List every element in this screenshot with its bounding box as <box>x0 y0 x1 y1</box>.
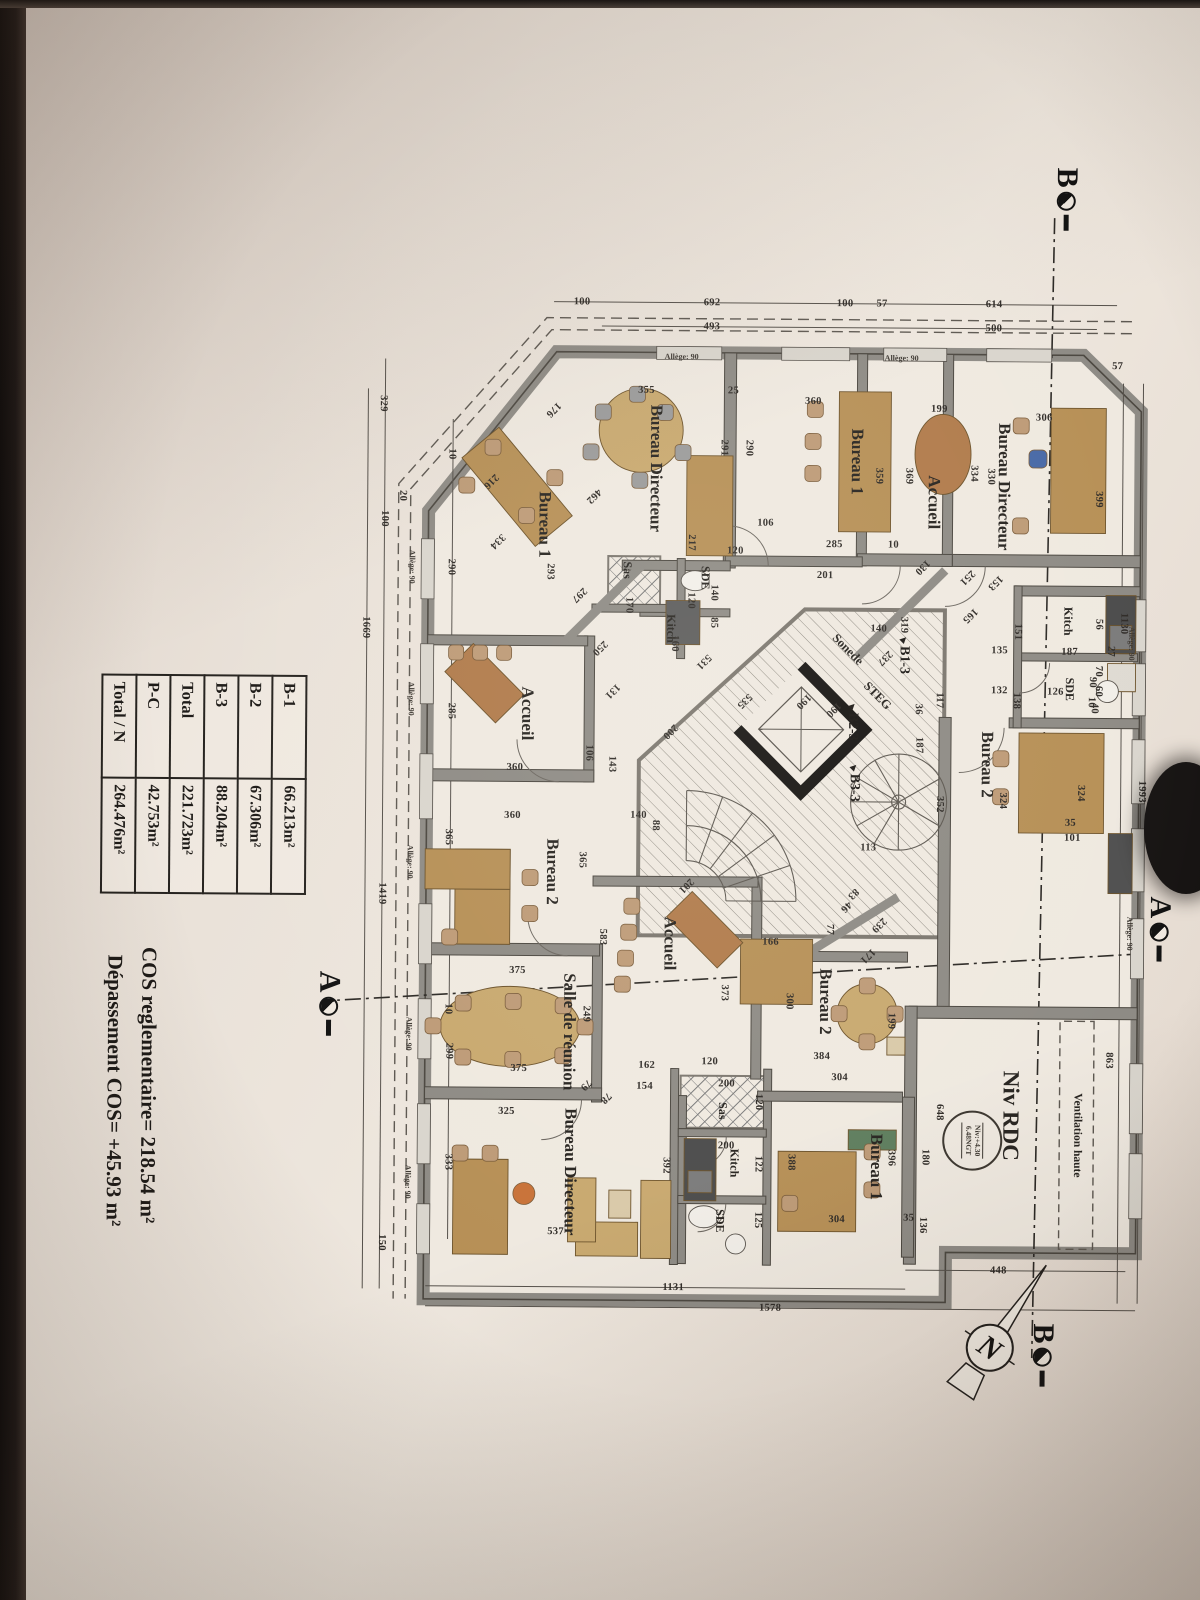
dimension-label: 150 <box>376 1234 387 1251</box>
dimension-label: 285 <box>826 539 843 550</box>
section-marker-a: A <box>312 971 346 1036</box>
dimension-label: 160 <box>669 635 680 652</box>
room-label: SDE <box>1062 678 1077 701</box>
entry-label: B2-3 <box>845 713 860 741</box>
dimension-label: 217 <box>686 534 697 551</box>
dimension-label: 384 <box>813 1051 830 1062</box>
allege-window-label: Allège: 90 <box>885 353 919 362</box>
cos-note: COS reglementaire= 218.54 m² <box>135 947 162 1224</box>
dimension-label: 285 <box>446 703 457 720</box>
dimension-label: 40 <box>1089 703 1100 714</box>
dimension-label: 126 <box>1047 687 1064 698</box>
room-label: Bureau 2 <box>977 731 997 797</box>
dimension-label: 388 <box>786 1154 797 1171</box>
dimension-label: 583 <box>597 929 608 946</box>
dimension-label: 100 <box>837 298 854 309</box>
dimension-label: 1993 <box>1136 781 1147 803</box>
area-table-value: 42.753m² <box>135 777 170 893</box>
dimension-label: 151 <box>1012 624 1023 641</box>
dimension-label: 330 <box>985 468 996 485</box>
dimension-label: 113 <box>860 842 876 853</box>
dimension-label: 399 <box>1093 491 1104 508</box>
dimension-label: 199 <box>931 404 948 415</box>
room-label: Bureau Directeur <box>993 423 1014 550</box>
dimension-label: 200 <box>718 1140 735 1151</box>
room-label: Salle de réunion <box>559 973 580 1090</box>
area-table-row: B-267.306m² <box>237 675 273 893</box>
dimension-label: 1578 <box>759 1303 781 1314</box>
allege-window-label: Allège: 90 <box>665 352 699 361</box>
dimension-label: 360 <box>504 810 521 821</box>
dimension-label: 120 <box>685 592 696 609</box>
section-marker-b: B <box>1050 168 1084 231</box>
dimension-label: 299 <box>443 1043 454 1060</box>
dimension-label: 360 <box>506 762 523 773</box>
dimension-label: 648 <box>934 1104 945 1121</box>
area-table-label: P-C <box>136 675 171 778</box>
dimension-label: 56 <box>1093 619 1104 630</box>
dimension-label: 375 <box>509 965 526 976</box>
dimension-label: 199 <box>886 1013 897 1030</box>
dimension-label: 324 <box>1075 785 1086 802</box>
photo-dark-edge-left <box>0 0 26 1600</box>
room-label: Bureau 1 <box>847 429 867 495</box>
dimension-label: 329 <box>378 395 389 412</box>
area-table-row: B-166.213m² <box>271 676 307 894</box>
level-stamp: Niv:+4.30 6.48NGT <box>942 1110 1002 1170</box>
dimension-label: 1131 <box>662 1282 684 1293</box>
dimension-label: 500 <box>986 323 1003 334</box>
dimension-label: 863 <box>1103 1052 1114 1069</box>
dimension-label: 187 <box>913 737 924 754</box>
dimension-label: 101 <box>1064 833 1081 844</box>
section-marker-icon <box>1150 922 1169 941</box>
dimension-label: 180 <box>920 1149 931 1166</box>
dimension-label: 201 <box>817 570 834 581</box>
dimension-label: 365 <box>443 829 454 846</box>
entry-label: B1-3 <box>896 646 911 674</box>
photo-of-floor-plan: N <box>0 0 1200 1600</box>
dimension-label: 60 <box>1093 686 1104 697</box>
allege-window-label: Allège: 90 <box>404 1017 413 1051</box>
dimension-label: 57 <box>1112 361 1123 372</box>
area-table-label: Total / N <box>102 675 137 778</box>
area-table-row: P-C42.753m² <box>135 675 171 893</box>
dimension-label: 291 <box>719 439 730 456</box>
dimension-label: 106 <box>583 745 594 762</box>
section-marker-icon <box>320 996 339 1015</box>
dimension-label: 249 <box>581 1006 592 1023</box>
floor-plan-rotated-layer: N <box>0 0 1200 1600</box>
section-marker-icon <box>1057 192 1076 211</box>
dimension-label: 143 <box>606 756 617 773</box>
room-label: Accueil <box>517 687 537 741</box>
photo-dark-edge-top <box>0 0 1200 8</box>
section-tick <box>1157 945 1162 961</box>
dimension-label: 10 <box>443 1003 454 1014</box>
area-table-label: B-1 <box>272 676 307 779</box>
area-table-value: 88.204m² <box>203 778 238 894</box>
section-tick <box>1040 1371 1045 1387</box>
area-table-value: 66.213m² <box>271 778 306 894</box>
dimension-label: 125 <box>752 1212 763 1229</box>
dimension-label: 360 <box>805 396 822 407</box>
area-table-value: 67.306m² <box>237 778 272 894</box>
dimension-label: 306 <box>1036 413 1053 424</box>
room-label: Sas <box>715 1102 730 1119</box>
dimension-label: 375 <box>510 1063 527 1074</box>
unit-entry-marker: ▲B1-3 <box>895 634 911 674</box>
ventilation-label: Ventilation haute <box>1071 1093 1084 1177</box>
allege-window-label: Allège: 90 <box>403 1165 412 1199</box>
dimension-label: 324 <box>997 792 1008 809</box>
dimension-label: 122 <box>753 1156 764 1173</box>
area-summary-table: B-166.213m²B-267.306m²B-388.204m²Total22… <box>100 674 308 895</box>
dimension-label: 373 <box>719 985 730 1002</box>
dimension-label: 355 <box>638 385 655 396</box>
room-label: Bureau 1 <box>866 1134 886 1200</box>
dimension-label: 1419 <box>376 882 387 904</box>
section-marker-b: B <box>1026 1323 1060 1386</box>
stamp-line2: 6.48NGT <box>964 1126 973 1155</box>
dimension-label: 100 <box>574 296 591 307</box>
room-label: Bureau Directeur <box>560 1108 581 1235</box>
unit-entry-marker: ▲B3-3 <box>846 762 862 802</box>
dimension-label: 140 <box>708 584 719 601</box>
area-table-row: Total / N264.476m² <box>101 675 137 893</box>
depassement-note: Dépassement COS= +45.93 m² <box>101 955 128 1227</box>
dimension-label: 85 <box>708 617 719 628</box>
dimension-label: 369 <box>903 468 914 485</box>
dimension-label: 35 <box>903 1213 914 1224</box>
dimension-label: 117 <box>934 692 945 708</box>
dimension-label: 200 <box>718 1078 735 1089</box>
area-table-label: B-3 <box>204 675 239 778</box>
dimension-label: 448 <box>990 1265 1007 1276</box>
section-letter: B <box>1026 1323 1060 1343</box>
dimension-label: 170 <box>623 597 634 614</box>
dimension-label: 290 <box>744 440 755 457</box>
room-label: SDE <box>712 1209 727 1232</box>
dimension-label: 120 <box>753 1094 764 1111</box>
dimension-label: 396 <box>886 1150 897 1167</box>
dimension-label: 392 <box>660 1157 671 1174</box>
dimension-label: 136 <box>917 1217 928 1234</box>
allege-window-label: Allège: 90 <box>406 845 415 879</box>
area-table-value: 221.723m² <box>169 778 204 894</box>
dimension-label: 35 <box>1065 818 1076 829</box>
dimension-label: 140 <box>870 623 887 634</box>
allege-window-label: Allège: 90 <box>1125 917 1134 951</box>
room-label: Bureau 1 <box>534 491 554 557</box>
section-marker-icon <box>1033 1348 1052 1367</box>
dimension-label: 138 <box>1011 693 1022 710</box>
dimension-label: 359 <box>873 468 884 485</box>
dimension-label: 333 <box>443 1154 454 1171</box>
dimension-label: 365 <box>577 852 588 869</box>
dimension-label: 304 <box>828 1214 845 1225</box>
room-label: Bureau 2 <box>542 838 562 904</box>
dimension-label: 25 <box>728 385 739 396</box>
dimension-label: 614 <box>986 299 1003 310</box>
dimension-label: 187 <box>1061 647 1078 658</box>
dimension-label: 77 <box>824 924 835 935</box>
dimension-label: 70 <box>1093 666 1104 677</box>
dimension-label: 304 <box>831 1072 848 1083</box>
dimension-label: 132 <box>991 685 1008 696</box>
section-tick <box>1064 215 1069 231</box>
dimension-label: 36 <box>913 704 924 715</box>
section-marker-a: A <box>1142 896 1176 961</box>
dimension-label: 140 <box>630 810 647 821</box>
room-label: Sas <box>620 561 635 578</box>
dimension-label: 120 <box>727 545 744 556</box>
room-label: Kitch <box>1060 607 1075 636</box>
area-table-row: Total221.723m² <box>169 675 205 893</box>
room-label: Kitch <box>726 1149 741 1178</box>
section-letter: A <box>1143 896 1177 918</box>
room-label: Accueil <box>924 475 944 529</box>
section-tick <box>326 1019 331 1035</box>
allege-window-label: Allège: 90 <box>1127 627 1136 661</box>
dimension-label: 20 <box>397 490 408 501</box>
dimension-label: 154 <box>636 1081 653 1092</box>
dimension-label: 162 <box>638 1060 655 1071</box>
dimension-label: 537 <box>547 1226 564 1237</box>
section-letter: B <box>1050 168 1084 188</box>
dimension-label: 166 <box>762 937 779 948</box>
area-table-label: Total <box>170 675 205 778</box>
dimension-label: 120 <box>701 1056 718 1067</box>
dimension-label: 293 <box>545 563 556 580</box>
dimension-label: 135 <box>991 645 1008 656</box>
dimension-label: 290 <box>446 559 457 576</box>
allege-window-label: Allège: 90 <box>407 682 416 716</box>
dimension-label: 88 <box>650 820 661 831</box>
dimension-label: 106 <box>757 518 774 529</box>
dimension-label: 57 <box>876 298 887 309</box>
dimension-label: 300 <box>784 993 795 1010</box>
allege-window-label: Allège: 90 <box>408 550 417 584</box>
area-table-value: 264.476m² <box>101 777 136 893</box>
room-label: Accueil <box>659 917 679 971</box>
entry-label: B3-3 <box>847 774 862 802</box>
dimension-label: 27 <box>1105 646 1116 657</box>
unit-entry-marker: ▲B2-3 <box>844 701 860 741</box>
room-label: Bureau 2 <box>815 968 835 1034</box>
dimension-label: 10 <box>888 540 899 551</box>
room-label: Bureau Directeur <box>645 405 666 532</box>
dimension-label: 493 <box>704 321 721 332</box>
dimension-label: 10 <box>446 448 457 459</box>
dimension-label: 692 <box>704 297 721 308</box>
dimension-label: 334 <box>968 465 979 482</box>
stamp-line1: Niv:+4.30 <box>973 1125 982 1156</box>
dimension-label: 325 <box>498 1106 515 1117</box>
dimension-label: 100 <box>379 510 390 527</box>
section-letter: A <box>312 971 346 993</box>
dimension-label: 352 <box>934 796 945 813</box>
area-table-label: B-2 <box>238 675 273 778</box>
dimension-label: 1669 <box>360 616 371 638</box>
area-table-row: B-388.204m² <box>203 675 239 893</box>
